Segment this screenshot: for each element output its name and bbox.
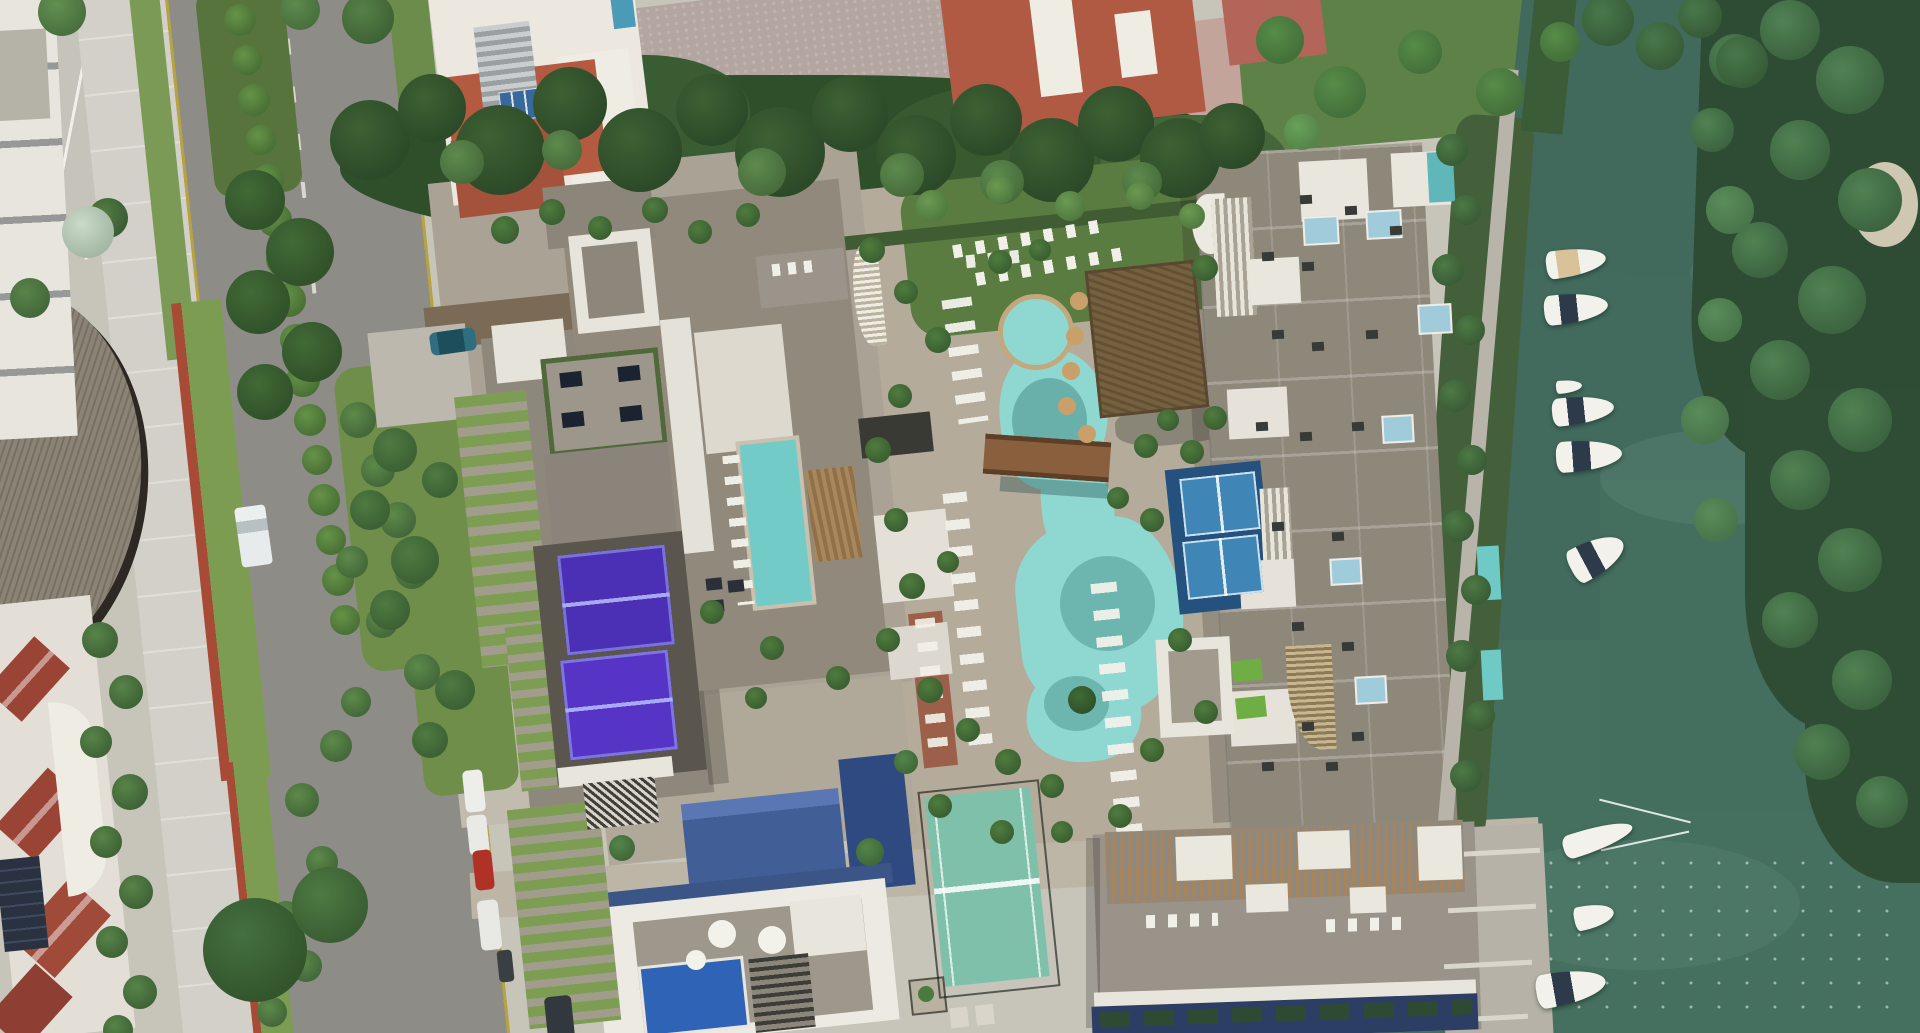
plunge-pool-3: [1417, 303, 1453, 335]
tree: [950, 84, 1022, 156]
tree: [1856, 776, 1908, 828]
tree: [90, 826, 122, 858]
tree: [1040, 774, 1064, 798]
tree: [112, 774, 148, 810]
roof-furniture: [1302, 262, 1314, 272]
tree: [350, 490, 390, 530]
seating-b-south-2: [727, 579, 744, 593]
lounge-sofa-2: [617, 365, 640, 382]
tree: [232, 45, 262, 75]
tree: [1199, 103, 1265, 169]
umbrella-3: [1062, 362, 1080, 380]
tree: [1451, 195, 1481, 225]
building-d-pool: [641, 959, 747, 1033]
tree: [285, 783, 319, 817]
roof-furniture: [1342, 642, 1354, 652]
tree: [1690, 108, 1734, 152]
roof-furniture: [1292, 622, 1304, 632]
loungers-e-1: [1146, 913, 1218, 929]
roof-furniture: [1262, 762, 1274, 772]
unit-white-roof-3: [1249, 257, 1301, 306]
car-parked-dark: [496, 949, 514, 982]
tree: [876, 628, 900, 652]
tree: [1107, 487, 1129, 509]
tree: [542, 130, 582, 170]
tree: [373, 428, 417, 472]
tree: [598, 108, 682, 192]
tree: [688, 220, 712, 244]
tree: [109, 675, 143, 709]
tree: [1140, 738, 1164, 762]
umbrella-d-3: [686, 950, 706, 970]
tree: [1126, 182, 1154, 210]
tree: [237, 364, 293, 420]
tree: [398, 74, 466, 142]
lounge-sofa-4: [619, 405, 642, 422]
grille-d: [748, 953, 815, 1033]
umbrella-5: [1078, 425, 1096, 443]
tree: [1832, 650, 1892, 710]
tree: [865, 437, 891, 463]
apartment-west-roof: [0, 28, 50, 121]
tree: [1762, 592, 1818, 648]
tree: [1750, 340, 1810, 400]
roof-furniture: [1390, 226, 1402, 236]
pickleball-court-1: [1179, 471, 1261, 537]
tree: [336, 546, 368, 578]
unit-white-roof-1: [1298, 158, 1369, 221]
umbrella-d-2: [758, 926, 786, 954]
tree: [80, 726, 112, 758]
grass-pad-4: [1235, 695, 1267, 719]
lounge-sofa-3: [561, 411, 584, 428]
aerial-resort-scene: [0, 0, 1920, 1033]
car-suv-dark: [544, 995, 575, 1033]
tree: [491, 216, 519, 244]
tree: [1446, 640, 1478, 672]
tree: [859, 237, 885, 263]
roof-furniture: [1262, 252, 1274, 262]
tree: [928, 794, 952, 818]
roof-furniture: [1272, 330, 1284, 340]
roof-cube-e-3: [1417, 825, 1463, 881]
tree: [736, 203, 760, 227]
tree: [1140, 508, 1164, 532]
tree: [609, 835, 635, 861]
umbrella-1: [1070, 292, 1088, 310]
tree: [745, 687, 767, 709]
tree: [1716, 36, 1768, 88]
tree: [539, 199, 565, 225]
roof-cube-e-1: [1175, 835, 1233, 881]
roof-furniture: [1300, 195, 1312, 205]
tree: [96, 926, 128, 958]
tree: [391, 536, 439, 584]
tree: [282, 322, 342, 382]
tree: [412, 722, 448, 758]
tree: [1450, 760, 1482, 792]
tree: [1461, 575, 1491, 605]
edge-pool-e2: [1481, 650, 1504, 701]
tree: [1457, 445, 1487, 475]
tree: [435, 670, 475, 710]
tree: [1168, 628, 1192, 652]
tree: [700, 600, 724, 624]
tree: [1314, 66, 1366, 118]
tree: [320, 730, 352, 762]
tree: [917, 677, 943, 703]
tree: [894, 280, 918, 304]
tree: [1694, 498, 1738, 542]
tree: [1157, 409, 1179, 431]
roof-cube-e-4: [1246, 883, 1289, 912]
tree: [1029, 239, 1051, 261]
roof-furniture: [1352, 422, 1364, 432]
tree: [1203, 406, 1227, 430]
tree: [1194, 700, 1218, 724]
tree: [856, 838, 884, 866]
tree: [826, 666, 850, 690]
plunge-pool-1: [1302, 215, 1339, 246]
tree: [990, 820, 1014, 844]
tree: [1180, 440, 1204, 464]
umbrella-d-1: [708, 920, 736, 948]
tree: [422, 462, 458, 498]
tree: [246, 125, 276, 155]
plunge-pool-5: [1329, 557, 1362, 586]
tree: [533, 67, 607, 141]
palapa-restaurant: [1085, 260, 1210, 419]
spa-circle: [998, 294, 1074, 370]
tree: [1818, 528, 1882, 592]
rooftop-lounge: [540, 347, 668, 457]
tree: [340, 402, 376, 438]
tree: [1794, 724, 1850, 780]
tree: [238, 84, 270, 116]
planter-plant: [918, 986, 934, 1002]
tree: [1706, 186, 1754, 234]
tree: [916, 190, 948, 222]
plunge-pool-2: [1365, 209, 1402, 240]
tree: [937, 551, 959, 573]
tree: [888, 384, 912, 408]
tree: [294, 404, 326, 436]
roof-furniture: [1326, 762, 1338, 772]
tree: [1636, 22, 1684, 70]
tree: [1465, 701, 1495, 731]
umbrella-4: [1058, 397, 1076, 415]
tree: [1134, 434, 1158, 458]
tree: [588, 216, 612, 240]
tree: [1284, 114, 1320, 150]
tree: [812, 76, 888, 152]
tree: [1436, 134, 1468, 166]
roof-furniture: [1345, 206, 1357, 216]
tree: [899, 573, 925, 599]
tree: [738, 148, 786, 196]
tree: [1068, 686, 1096, 714]
tree: [1192, 255, 1218, 281]
tree: [1179, 203, 1205, 229]
tree: [370, 590, 410, 630]
tree: [1442, 510, 1474, 542]
tree: [1828, 388, 1892, 452]
tree: [884, 508, 908, 532]
tree: [1476, 68, 1524, 116]
tree: [1816, 46, 1884, 114]
tree: [760, 636, 784, 660]
tree: [203, 898, 307, 1002]
tree: [226, 270, 290, 334]
tree: [956, 718, 980, 742]
tree: [894, 750, 918, 774]
pickleball-court-2: [1182, 534, 1264, 600]
lounge-sofa-1: [559, 371, 582, 388]
tree: [925, 327, 951, 353]
roof-furniture: [1352, 732, 1364, 742]
tree: [10, 278, 50, 318]
tree: [1055, 191, 1085, 221]
tree: [642, 197, 668, 223]
roof-furniture: [1272, 522, 1284, 532]
tree: [440, 140, 484, 184]
wood-deck: [805, 466, 862, 563]
tree: [988, 250, 1012, 274]
tree: [1698, 298, 1742, 342]
roof-furniture: [1366, 330, 1378, 340]
tree: [1051, 821, 1073, 843]
pool-house-nw: [610, 0, 636, 29]
roof-furniture: [1332, 532, 1344, 542]
padel-court-2: [560, 650, 678, 761]
tree: [82, 622, 118, 658]
tree: [995, 749, 1021, 775]
car-parked-red: [472, 849, 495, 891]
seating-b-south-1: [705, 577, 722, 591]
tree: [1108, 804, 1132, 828]
tree: [1798, 266, 1866, 334]
plunge-pool-4: [1381, 414, 1414, 444]
tree: [1681, 396, 1729, 444]
unit-white-roof-4: [1227, 386, 1290, 439]
roof-furniture: [1302, 722, 1314, 732]
tree: [225, 170, 285, 230]
roof-cube-e-5: [1350, 886, 1387, 913]
tree: [1432, 254, 1464, 286]
tree: [1439, 380, 1471, 412]
roof-furniture: [1312, 342, 1324, 352]
padel-court-1: [557, 545, 675, 656]
car-parked-1: [462, 769, 486, 813]
tree: [1770, 450, 1830, 510]
tree: [1540, 22, 1580, 62]
tree: [1398, 30, 1442, 74]
tree: [302, 445, 332, 475]
tree: [880, 153, 924, 197]
house-n-wall-2: [1114, 10, 1158, 78]
tree: [341, 687, 371, 717]
tree: [224, 4, 256, 36]
building-b-white-inner: [581, 241, 644, 318]
building-d-white-ne: [789, 894, 866, 957]
tree: [1770, 120, 1830, 180]
tree: [119, 875, 153, 909]
umbrella-2: [1066, 327, 1084, 345]
tree: [308, 484, 340, 516]
grass-pad-3: [1231, 658, 1263, 682]
tree: [292, 867, 368, 943]
tree: [62, 206, 114, 258]
tree: [330, 605, 360, 635]
tree: [986, 176, 1014, 204]
roof-cube-e-2: [1297, 830, 1350, 870]
roof-furniture: [1256, 422, 1268, 432]
tree: [1256, 16, 1304, 64]
tree: [123, 975, 157, 1009]
tree: [1455, 315, 1485, 345]
terrace-b-ne: [756, 248, 849, 309]
plunge-pool-6: [1354, 675, 1387, 705]
building-b-white-east: [694, 324, 794, 455]
terrace-lattice: [583, 776, 659, 829]
tree: [1838, 168, 1902, 232]
roof-furniture: [1300, 432, 1312, 442]
tree: [1760, 0, 1820, 60]
